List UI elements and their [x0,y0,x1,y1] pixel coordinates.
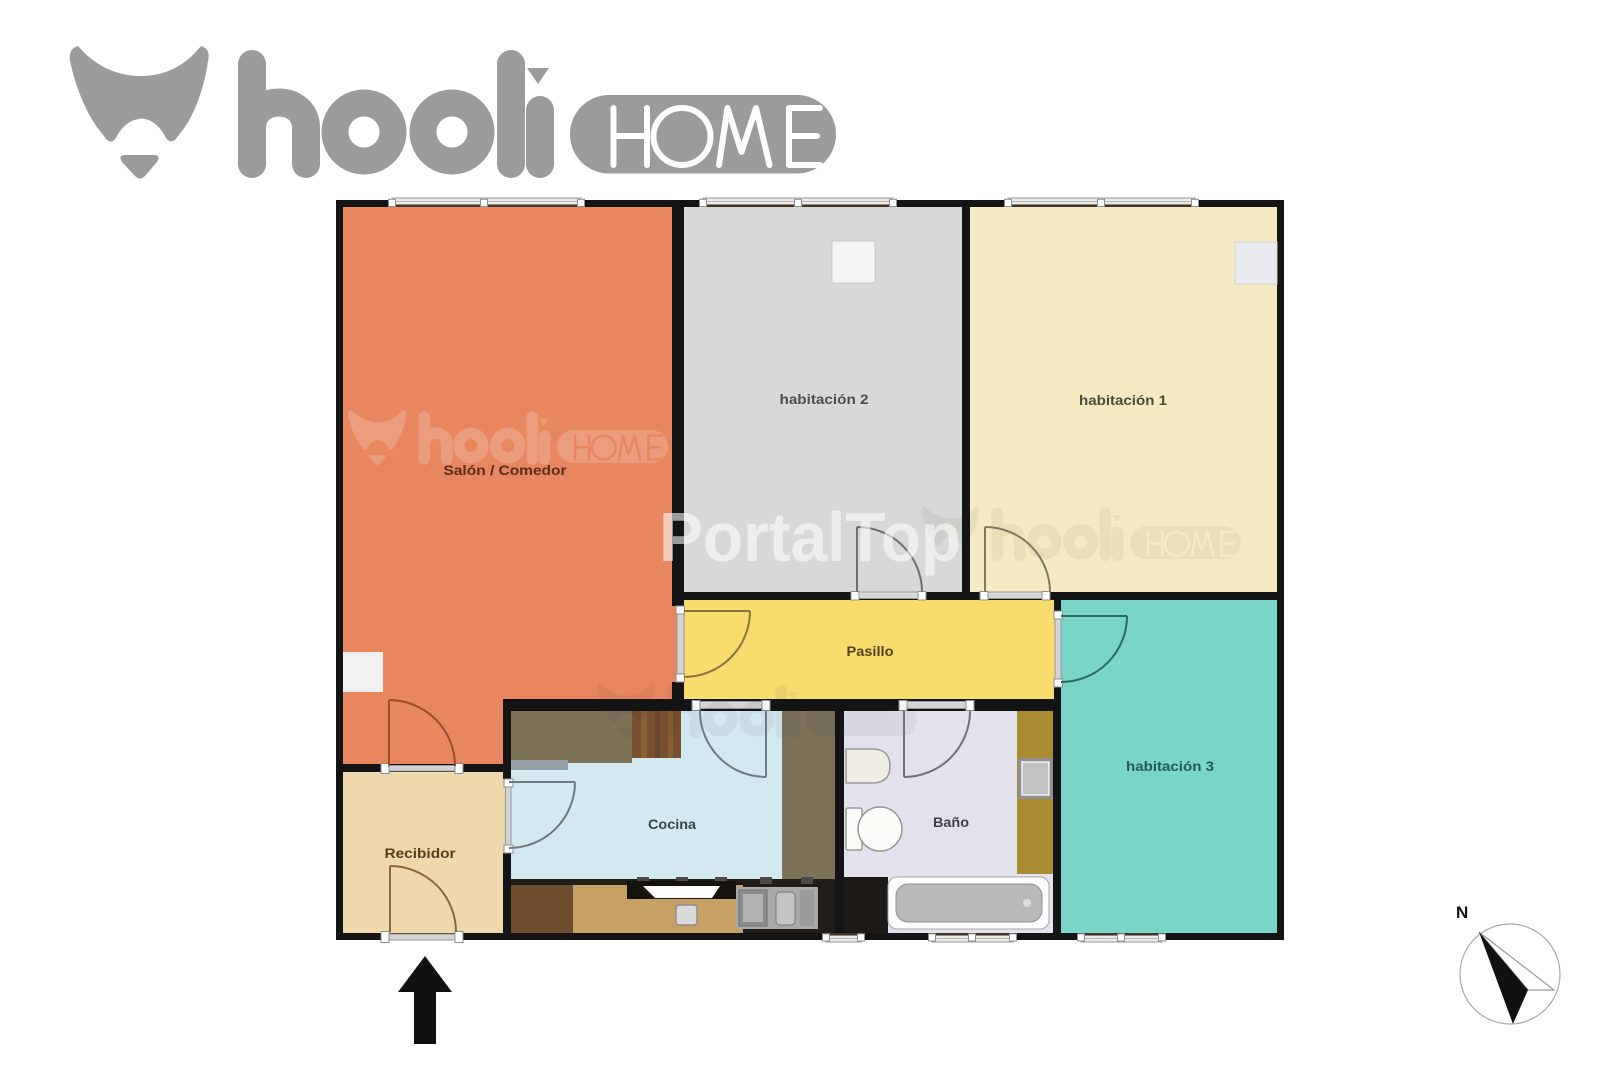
svg-text:habitación 1: habitación 1 [1079,393,1168,408]
svg-text:PortalTop: PortalTop [659,498,961,576]
svg-text:Salón / Comedor: Salón / Comedor [444,463,568,478]
svg-text:Baño: Baño [933,815,969,830]
svg-text:habitación 2: habitación 2 [780,392,869,407]
svg-text:Pasillo: Pasillo [847,644,894,659]
svg-text:Cocina: Cocina [648,817,697,832]
svg-text:N: N [1456,903,1468,922]
svg-text:Recibidor: Recibidor [385,846,457,861]
svg-text:habitación 3: habitación 3 [1126,759,1215,774]
